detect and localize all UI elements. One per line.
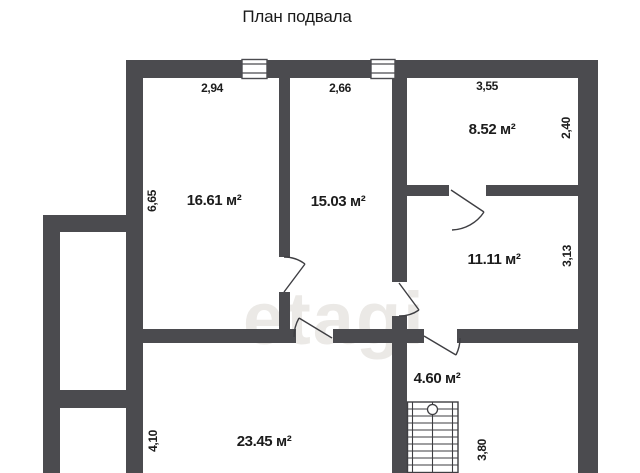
room3-area-label: 8.52 м² — [469, 121, 516, 138]
room2-width-dim: 2,66 — [329, 81, 351, 95]
wall-annex-top — [43, 215, 126, 232]
staircase-pole — [428, 405, 438, 415]
door-room3-room4 — [451, 190, 484, 230]
wall-annex-divider — [60, 390, 126, 408]
room1-height-dim: 6,65 — [145, 189, 159, 211]
wall-partition2-lower — [392, 316, 407, 473]
page-title: План подвала — [242, 7, 352, 26]
room4-area-label: 11.11 м² — [468, 251, 521, 268]
room6-height-dim: 4,10 — [146, 429, 160, 451]
wall-partition1-upper — [279, 78, 290, 257]
door-room4-lobby — [424, 336, 460, 355]
room1-width-dim: 2,94 — [201, 81, 223, 95]
room7-height-dim: 3,80 — [475, 438, 489, 460]
floor-plan-page: План подвала etagi — [0, 0, 640, 473]
wall-horizontal-f — [486, 185, 578, 196]
room3-width-dim: 3,55 — [476, 79, 498, 93]
room6-area-label: 23.45 м² — [237, 433, 292, 450]
floor-plan-drawing: План подвала etagi — [0, 0, 640, 473]
wall-horizontal-e — [407, 185, 449, 196]
wall-outer-right — [578, 60, 598, 473]
wall-horizontal-c — [407, 329, 424, 343]
wall-horizontal-d — [457, 329, 578, 343]
room4-height-dim: 3,13 — [560, 244, 574, 266]
room2-area-label: 15.03 м² — [311, 193, 366, 210]
wall-annex-left — [43, 215, 60, 473]
window-frame — [242, 60, 267, 79]
dimension-labels-horizontal: 2,94 2,66 3,55 — [201, 79, 498, 95]
window-1 — [242, 60, 267, 79]
wall-horizontal-a — [143, 329, 296, 343]
room1-area-label: 16.61 м² — [187, 192, 242, 209]
wall-outer-top — [126, 60, 598, 78]
staircase — [408, 402, 459, 473]
wall-outer-left — [126, 60, 143, 473]
room5-area-label: 4.60 м² — [414, 370, 461, 387]
window-frame — [371, 60, 395, 79]
wall-horizontal-b — [333, 329, 392, 343]
wall-partition2-upper — [392, 78, 407, 282]
room3-height-dim: 2,40 — [559, 116, 573, 138]
window-2 — [371, 60, 395, 79]
